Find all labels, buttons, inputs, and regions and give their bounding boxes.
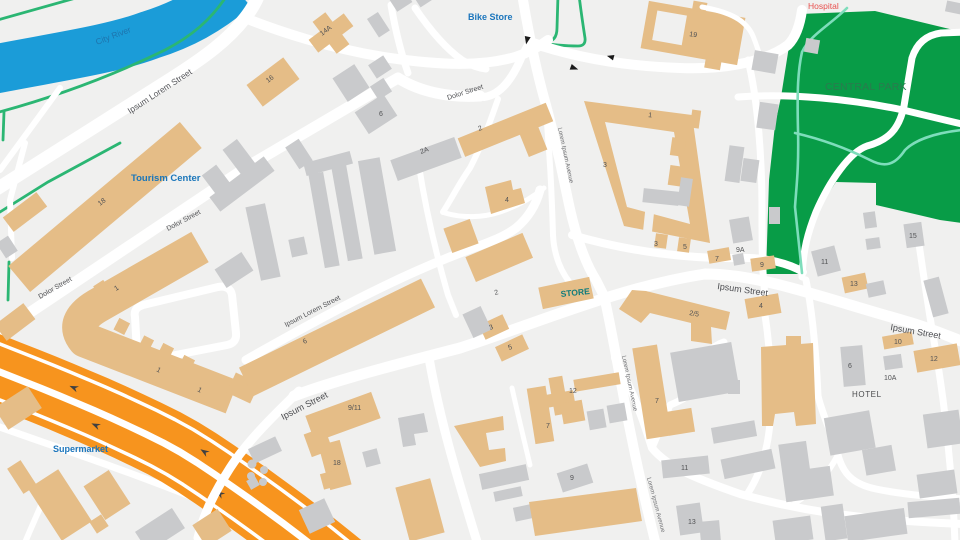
svg-text:HOTEL: HOTEL [852, 390, 882, 399]
svg-text:CENTRAL PARK: CENTRAL PARK [825, 81, 907, 93]
svg-text:4: 4 [759, 303, 763, 310]
svg-text:10: 10 [894, 339, 902, 346]
svg-text:13: 13 [850, 281, 858, 288]
svg-text:Supermarket: Supermarket [53, 444, 108, 454]
svg-text:10A: 10A [884, 375, 897, 382]
svg-text:3: 3 [603, 162, 607, 169]
svg-text:9: 9 [760, 262, 764, 269]
svg-text:13: 13 [688, 519, 696, 526]
svg-text:12: 12 [569, 388, 577, 395]
svg-text:6: 6 [379, 111, 383, 118]
svg-text:7: 7 [715, 256, 719, 263]
svg-text:11: 11 [821, 259, 828, 266]
svg-text:Hospital: Hospital [808, 1, 839, 11]
svg-text:9/11: 9/11 [348, 405, 361, 412]
svg-text:6: 6 [848, 363, 852, 370]
svg-text:4: 4 [505, 197, 509, 204]
svg-text:5: 5 [683, 244, 687, 251]
svg-text:9: 9 [570, 475, 574, 482]
svg-text:Tourism Center: Tourism Center [131, 173, 201, 184]
svg-text:3: 3 [654, 241, 658, 248]
svg-text:7: 7 [655, 398, 659, 405]
svg-text:7: 7 [546, 423, 550, 430]
svg-text:Bike Store: Bike Store [468, 12, 513, 22]
svg-text:18: 18 [333, 460, 341, 467]
svg-text:9A: 9A [736, 247, 745, 254]
svg-text:12: 12 [930, 356, 938, 363]
svg-text:11: 11 [681, 465, 688, 472]
svg-text:15: 15 [909, 233, 917, 240]
svg-text:19: 19 [689, 31, 698, 39]
